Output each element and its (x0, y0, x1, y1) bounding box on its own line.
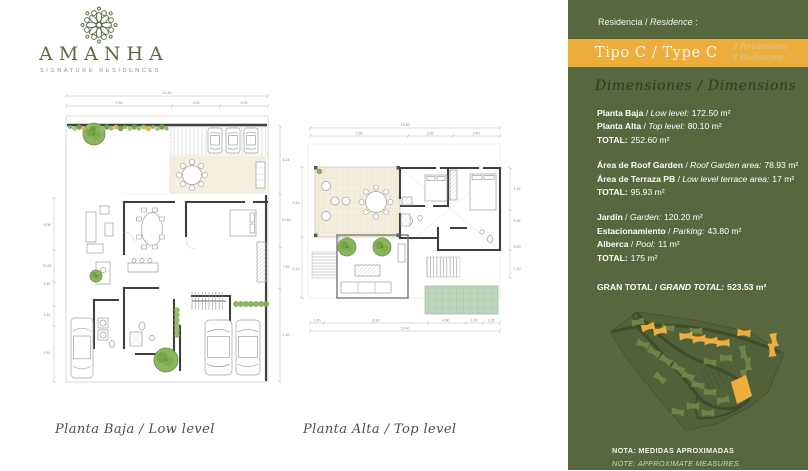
total-row: TOTAL:252.60 m² (597, 134, 798, 147)
svg-text:3.20: 3.20 (193, 101, 200, 105)
residence-info-panel: Residencia / Residence : Tipo C / Type C… (568, 0, 808, 470)
bedrooms-label: 3 Recámaras 3 Bedrooms (732, 42, 788, 63)
caption-low-level: Planta Baja / Low level (55, 422, 215, 437)
brand-tagline: SIGNATURE RESIDENCES (33, 68, 165, 74)
svg-text:1.20: 1.20 (514, 267, 521, 271)
type-band: Tipo C / Type C 3 Recámaras 3 Bedrooms (568, 39, 808, 67)
terrace-group: Área de Roof Garden / Roof Garden area:7… (597, 159, 798, 199)
measure-row: Estacionamiento / Parking:43.80 m² (597, 225, 798, 238)
residence-label-en: Residence (650, 17, 693, 27)
svg-text:3.40: 3.40 (473, 132, 480, 136)
svg-text:8.45: 8.45 (514, 219, 521, 223)
svg-text:8.10: 8.10 (373, 319, 380, 323)
measure-row: Alberca / Pool:11 m² (597, 238, 798, 251)
measure-row: Planta Baja / Low level:172.50 m² (597, 107, 798, 120)
floor-plan-top-level: 13.40 7.50 3.95 3.40 1.00 8.10 4.60 1.20… (288, 118, 540, 365)
residence-label-es: Residencia (598, 17, 643, 27)
svg-text:5.15: 5.15 (293, 267, 300, 271)
measure-row: Jardín / Garden:120.20 m² (597, 211, 798, 224)
svg-text:5.00: 5.00 (514, 245, 521, 249)
total-row: TOTAL:95.93 m² (597, 186, 798, 199)
svg-text:2.51: 2.51 (44, 351, 51, 355)
roof-garden (314, 166, 400, 237)
svg-text:1.00: 1.00 (314, 319, 321, 323)
svg-text:13.40: 13.40 (401, 123, 410, 127)
residence-type-title: Tipo C / Type C (595, 45, 732, 61)
brand-name: AMANHA (33, 45, 165, 64)
bedrooms-es: 3 Recámaras (732, 42, 788, 53)
svg-text:13.40: 13.40 (163, 91, 172, 95)
trees (338, 238, 391, 256)
svg-text:1.14: 1.14 (44, 313, 51, 317)
note-es: NOTA: MEDIDAS APROXIMADAS (612, 445, 739, 458)
disclaimer-note: NOTA: MEDIDAS APROXIMADAS NOTE: APPROXIM… (612, 445, 739, 471)
dimensions-heading: Dimensiones / Dimensions (595, 78, 796, 94)
svg-text:13.40: 13.40 (401, 327, 410, 331)
svg-text:1.20: 1.20 (488, 319, 495, 323)
site-map (598, 300, 798, 440)
svg-text:4.00: 4.00 (241, 101, 248, 105)
bedrooms-en: 3 Bedrooms (732, 53, 788, 64)
brochure-page: AMANHA SIGNATURE RESIDENCES 13.40 (0, 0, 808, 470)
svg-text:7.50: 7.50 (116, 101, 123, 105)
svg-text:1.20: 1.20 (471, 319, 478, 323)
svg-text:7.50: 7.50 (356, 132, 363, 136)
measure-row: Planta Alta / Top level:80.10 m² (597, 120, 798, 133)
green-roof (425, 286, 498, 314)
svg-text:9.45: 9.45 (293, 201, 300, 205)
note-en: NOTE: APPROXIMATE MEASURES (612, 458, 739, 471)
svg-text:4.60: 4.60 (443, 319, 450, 323)
levels-group: Planta Baja / Low level:172.50 m² Planta… (597, 107, 798, 147)
grand-total-row: GRAN TOTAL / GRAND TOTAL:523.53 m² (597, 281, 798, 294)
brand-logo: AMANHA SIGNATURE RESIDENCES (33, 5, 165, 74)
svg-text:5.08: 5.08 (44, 223, 51, 227)
svg-text:3.95: 3.95 (427, 132, 434, 136)
exterior-group: Jardín / Garden:120.20 m² Estacionamient… (597, 211, 798, 265)
staircases (312, 252, 460, 278)
measure-row: Área de Roof Garden / Roof Garden area:7… (597, 159, 798, 172)
residence-label: Residencia / Residence : (598, 17, 698, 27)
svg-text:4.15: 4.15 (514, 187, 521, 191)
floor-plan-low-level: 13.40 7.50 3.20 4.00 5.08 10.85 3.40 1.1… (40, 86, 292, 420)
caption-top-level: Planta Alta / Top level (303, 422, 457, 437)
measure-row: Área de Terraza PB / Low level terrace a… (597, 173, 798, 186)
measurements-list: Planta Baja / Low level:172.50 m² Planta… (597, 107, 798, 294)
svg-text:10.85: 10.85 (43, 264, 52, 268)
svg-text:3.40: 3.40 (44, 282, 51, 286)
rosette-logo-icon (76, 5, 122, 45)
total-row: TOTAL:175 m² (597, 252, 798, 265)
